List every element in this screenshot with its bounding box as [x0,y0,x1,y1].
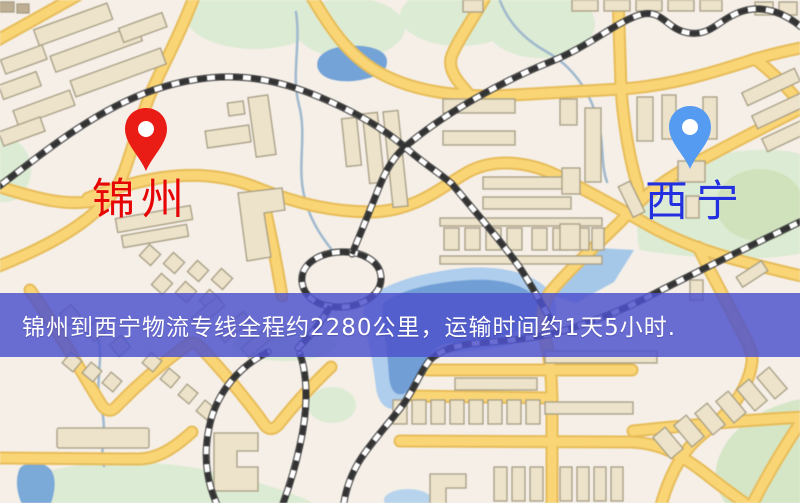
route-info-text: 锦州到西宁物流专线全程约2280公里，运输时间约1天5小时. [0,308,676,342]
map-screenshot: 锦州 西宁 锦州到西宁物流专线全程约2280公里，运输时间约1天5小时. [0,0,800,503]
destination-pin-icon[interactable] [668,105,712,169]
origin-pin-icon[interactable] [124,107,168,171]
origin-city-label: 锦州 [92,179,190,222]
route-info-banner: 锦州到西宁物流专线全程约2280公里，运输时间约1天5小时. [0,293,800,357]
map-canvas[interactable] [0,0,800,503]
destination-city-label: 西宁 [645,181,747,224]
